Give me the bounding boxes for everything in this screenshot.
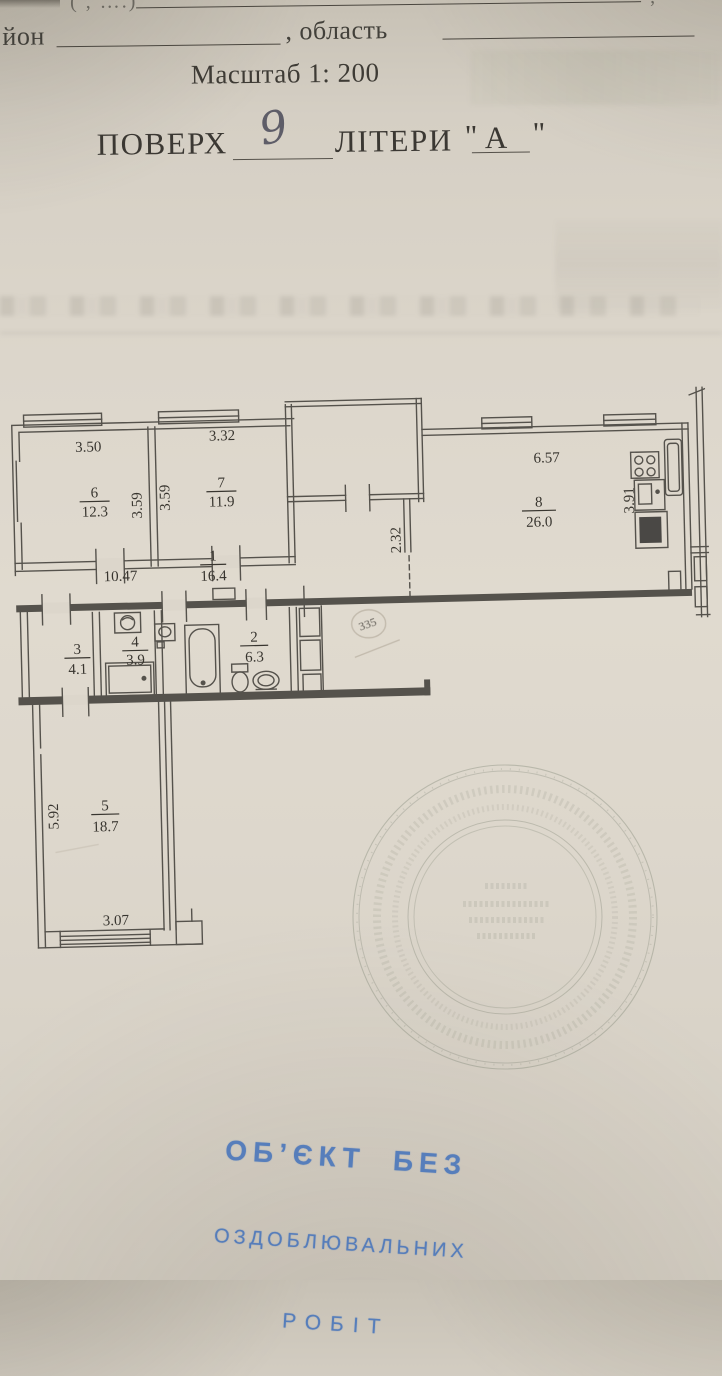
dim-room6-depth: 3.59: [129, 492, 146, 519]
letters-label: ЛІТЕРИ: [335, 122, 453, 159]
washing-machine-icon: [114, 612, 140, 633]
form-top-underline: [136, 0, 641, 8]
room7-area: 11.9: [209, 494, 235, 511]
wash-sink-icon: [253, 671, 279, 690]
floor-value-handwritten: 9: [255, 101, 292, 156]
room2-area: 6.3: [245, 649, 264, 665]
hand-basin-icon: [155, 624, 176, 648]
dim-room7-width: 3.32: [209, 428, 236, 445]
letters-quote-close: ": [532, 115, 547, 151]
room1-number: 1: [209, 548, 217, 564]
dim-kitchen-width: 6.57: [533, 450, 560, 467]
scale-text: Масштаб 1: 200: [191, 57, 380, 90]
dim-room7-depth: 3.59: [157, 484, 174, 511]
room4-area: 3.9: [126, 652, 145, 668]
fridge-icon: [664, 439, 682, 495]
toilet-icon: [232, 664, 249, 692]
ink-stamp-line3: РОБІТ: [185, 1300, 486, 1351]
kitchen-walls: [422, 413, 692, 599]
dim-room5-width: 3.07: [103, 913, 130, 930]
stove-icon: [631, 452, 660, 479]
room2-number: 2: [250, 630, 258, 646]
sink-icon: [635, 511, 668, 548]
room1-area: 16.4: [200, 568, 227, 585]
dim-room5-depth: 5.92: [46, 803, 63, 830]
ink-stamp-line1: ОБ’ЄКТ БЕЗ: [195, 1126, 497, 1188]
pencil-note: 335: [357, 614, 379, 633]
kitchen-fixtures: [630, 439, 684, 548]
letters-underline: [472, 151, 530, 154]
form-top-comma: ,: [650, 0, 657, 9]
room6-area: 12.3: [82, 504, 109, 521]
room3-number: 3: [73, 642, 81, 658]
form-header: ( , ….) , йон , область Масштаб 1: 200 П…: [0, 0, 722, 180]
room3-area: 4.1: [68, 662, 87, 678]
balcony-top-walls: [285, 398, 426, 598]
region-underline: [442, 35, 694, 40]
pencil-smudge-band: [0, 296, 700, 316]
room7-number: 7: [217, 475, 225, 491]
room6-number: 6: [90, 485, 98, 501]
region-label: , область: [285, 15, 388, 46]
letters-quote-open: ": [464, 118, 479, 154]
floor-label: ПОВЕРХ: [97, 125, 228, 163]
dim-corridor-length: 10.47: [103, 568, 138, 585]
district-underline: [57, 43, 281, 48]
floor-underline: [233, 157, 333, 160]
round-seal: [345, 758, 665, 1076]
room8-number: 8: [535, 495, 543, 511]
form-top-fragment: ( , ….): [70, 0, 138, 14]
faint-crease-line: [0, 332, 722, 334]
room5-area: 18.7: [92, 819, 119, 836]
balcony-right-walls: [687, 387, 711, 617]
room5-number: 5: [101, 798, 109, 814]
room4-number: 4: [131, 634, 139, 650]
dim-room6-width: 3.50: [75, 439, 102, 456]
district-label: йон: [2, 21, 45, 52]
dim-corridor-width: 2.32: [388, 527, 405, 554]
room8-area: 26.0: [526, 514, 553, 531]
ink-stamp-line2: ОЗДОБЛЮВАЛЬНИХ: [190, 1219, 491, 1269]
counter-icon: [634, 480, 665, 511]
bathtub-icon: [185, 624, 221, 695]
room6-7-walls: [11, 405, 297, 576]
no-finishing-works-stamp: ОБ’ЄКТ БЕЗ ОЗДОБЛЮВАЛЬНИХ РОБІТ: [183, 1077, 500, 1376]
dim-kitchen-depth: 3.91: [621, 487, 638, 514]
